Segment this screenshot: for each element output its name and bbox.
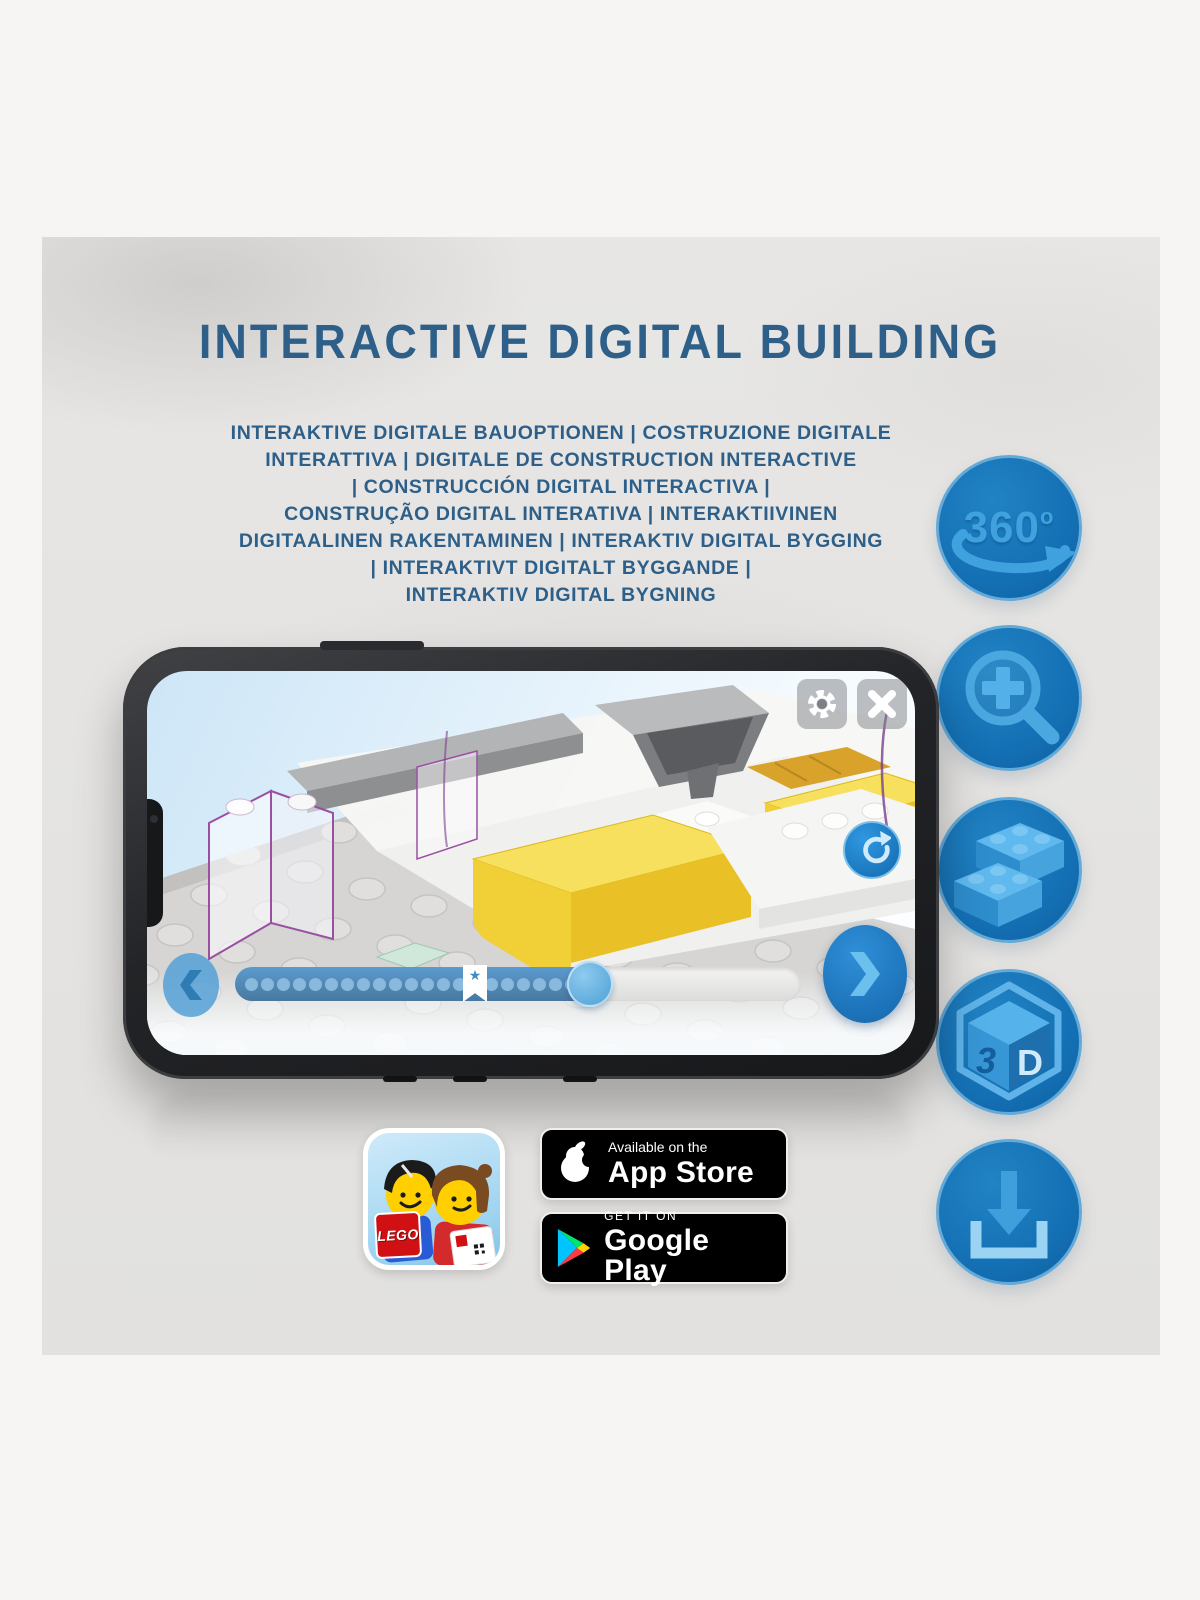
subtitle-line: | CONSTRUCCIÓN DIGITAL INTERACTIVA | bbox=[180, 474, 942, 501]
rotate-view-button[interactable] bbox=[843, 821, 901, 879]
progress-step-dot bbox=[293, 978, 306, 991]
progress-step-dot bbox=[517, 978, 530, 991]
lego-bricks-icon bbox=[946, 807, 1072, 933]
subtitle-line: INTERATTIVA | DIGITALE DE CONSTRUCTION I… bbox=[180, 447, 942, 474]
progress-step-dot bbox=[261, 978, 274, 991]
phone-mockup: ★ bbox=[123, 647, 939, 1079]
progress-step-dot bbox=[501, 978, 514, 991]
bookmark-star-icon: ★ bbox=[469, 965, 482, 985]
svg-text:3: 3 bbox=[976, 1040, 996, 1081]
feature-bricks-icon bbox=[936, 797, 1082, 943]
page-title: INTERACTIVE DIGITAL BUILDING bbox=[0, 314, 1200, 370]
chevron-left-icon bbox=[180, 970, 202, 1000]
close-button[interactable] bbox=[857, 679, 907, 729]
progress-step-dot bbox=[245, 978, 258, 991]
phone-notch bbox=[147, 799, 163, 927]
subtitle-multilingual: INTERAKTIVE DIGITALE BAUOPTIONEN | COSTR… bbox=[180, 420, 942, 609]
subtitle-line: DIGITAALINEN RAKENTAMINEN | INTERAKTIV D… bbox=[180, 528, 942, 555]
feature-download-icon bbox=[936, 1139, 1082, 1285]
app-store-tagline: Available on the bbox=[608, 1140, 754, 1154]
google-play-badge[interactable]: GET IT ON Google Play bbox=[540, 1212, 788, 1284]
progress-step-dot bbox=[549, 978, 562, 991]
next-step-button[interactable] bbox=[823, 925, 907, 1023]
phone-power-button bbox=[320, 641, 424, 650]
build-progress-slider[interactable]: ★ bbox=[235, 967, 801, 1001]
feature-360-rotation-icon: 360o bbox=[936, 455, 1082, 601]
close-icon bbox=[867, 689, 897, 719]
svg-text:D: D bbox=[1017, 1042, 1043, 1083]
lego-logo: LEGO bbox=[374, 1211, 422, 1259]
chevron-right-icon bbox=[850, 952, 880, 996]
progress-step-dot bbox=[325, 978, 338, 991]
progress-step-dot bbox=[437, 978, 450, 991]
progress-step-dot bbox=[389, 978, 402, 991]
rotate-icon bbox=[853, 831, 891, 869]
progress-step-dot bbox=[533, 978, 546, 991]
front-camera bbox=[150, 815, 158, 823]
rotation-arrow-icon bbox=[949, 526, 1075, 582]
slider-thumb[interactable] bbox=[567, 961, 613, 1007]
google-play-logo-icon bbox=[556, 1226, 592, 1270]
subtitle-line: INTERAKTIVE DIGITALE BAUOPTIONEN | COSTR… bbox=[180, 420, 942, 447]
previous-step-button[interactable] bbox=[163, 953, 219, 1017]
phone-reflection bbox=[150, 1086, 910, 1178]
progress-step-dot bbox=[357, 978, 370, 991]
phone-speaker-slot bbox=[383, 1076, 417, 1082]
magnifier-plus-icon bbox=[946, 635, 1072, 761]
phone-speaker-slot bbox=[453, 1076, 487, 1082]
gear-icon bbox=[806, 688, 838, 720]
feature-zoom-icon bbox=[936, 625, 1082, 771]
app-screen: ★ bbox=[147, 671, 915, 1055]
progress-step-dot bbox=[277, 978, 290, 991]
settings-button[interactable] bbox=[797, 679, 847, 729]
phone-speaker-slot bbox=[563, 1076, 597, 1082]
progress-step-dot bbox=[405, 978, 418, 991]
app-store-badge[interactable]: Available on the App Store bbox=[540, 1128, 788, 1200]
subtitle-line: INTERAKTIV DIGITAL BYGNING bbox=[180, 582, 942, 609]
google-play-tagline: GET IT ON bbox=[604, 1210, 772, 1222]
progress-step-dot bbox=[341, 978, 354, 991]
apple-logo-icon bbox=[556, 1140, 596, 1188]
progress-step-dot bbox=[309, 978, 322, 991]
subtitle-line: CONSTRUÇÃO DIGITAL INTERATIVA | INTERAKT… bbox=[180, 501, 942, 528]
app-icon-art: LEGO bbox=[368, 1133, 500, 1265]
download-arrow-icon bbox=[946, 1149, 1072, 1275]
subtitle-line: | INTERAKTIVT DIGITALT BYGGANDE | bbox=[180, 555, 942, 582]
progress-fill bbox=[235, 967, 590, 1001]
google-play-title: Google Play bbox=[604, 1226, 772, 1286]
app-store-title: App Store bbox=[608, 1158, 754, 1188]
lego-app-icon[interactable]: LEGO bbox=[363, 1128, 505, 1270]
progress-step-dot bbox=[421, 978, 434, 991]
progress-step-dot bbox=[373, 978, 386, 991]
3d-cube-icon: 3 D bbox=[946, 979, 1072, 1105]
feature-3d-icon: 3 D bbox=[936, 969, 1082, 1115]
